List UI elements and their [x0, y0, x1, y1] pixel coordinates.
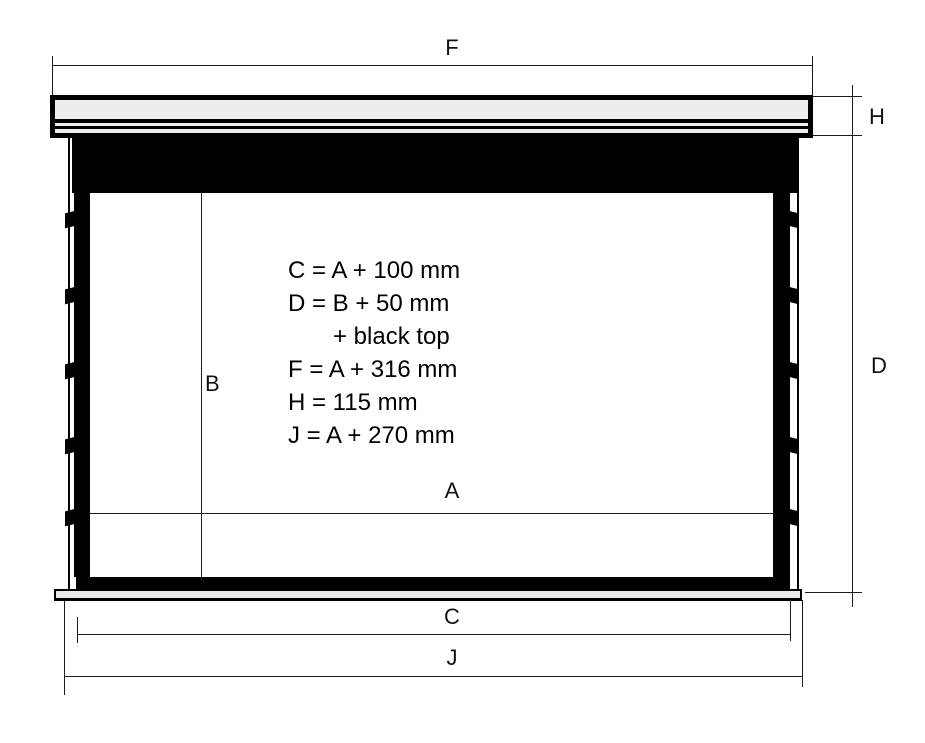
right-tension-tab [788, 287, 799, 305]
dim-ext-h-bottom [813, 135, 862, 136]
dim-label-b: B [205, 373, 231, 395]
dim-ext-c-right [790, 600, 791, 641]
formula-line: + black top [288, 320, 460, 353]
dim-label-d: D [866, 355, 892, 377]
left-tension-tab [65, 362, 76, 380]
dim-label-a: A [439, 480, 465, 502]
dim-line-a [90, 513, 773, 514]
formula-line: H = 115 mm [288, 386, 460, 419]
left-tension-tab [65, 287, 76, 305]
dim-ext-j-right [802, 600, 803, 687]
screen-dimension-diagram: F H D B A C J C = A + [0, 0, 925, 743]
formula-line: D = B + 50 mm [288, 287, 460, 320]
dim-label-h: H [864, 106, 890, 128]
casing-stripe-lower [55, 126, 808, 129]
dim-ext-f-right [812, 56, 813, 96]
formula-line: F = A + 316 mm [288, 353, 460, 386]
bottom-weight-bar [54, 589, 802, 601]
formula-line: C = A + 100 mm [288, 254, 460, 287]
dim-label-j: J [439, 647, 465, 669]
screen-black-left-border [74, 193, 90, 577]
dim-line-j [64, 676, 802, 677]
right-tension-tab [788, 211, 799, 229]
dimension-formulas: C = A + 100 mm D = B + 50 mm + black top… [288, 254, 460, 452]
formula-line: J = A + 270 mm [288, 419, 460, 452]
right-tension-tab [788, 362, 799, 380]
dim-line-c [77, 634, 790, 635]
casing-stripe-upper [55, 119, 808, 123]
dim-line-b [201, 193, 202, 577]
left-tension-tab [65, 437, 76, 455]
right-tension-tab [788, 437, 799, 455]
dim-label-f: F [439, 37, 465, 59]
dim-ext-f-left [52, 56, 53, 96]
dim-ext-h-top [813, 96, 862, 97]
left-tension-tab [65, 509, 76, 527]
right-tension-tab [788, 509, 799, 527]
dim-ext-c-left [77, 617, 78, 643]
dim-label-c: C [439, 606, 465, 628]
screen-casing [50, 95, 813, 138]
left-tension-tab [65, 211, 76, 229]
dim-line-f [52, 65, 813, 66]
dim-ext-d-bottom [805, 592, 862, 593]
screen-black-top-border [72, 138, 799, 193]
dim-line-h-d [852, 85, 853, 607]
dim-ext-j-left [64, 601, 65, 695]
